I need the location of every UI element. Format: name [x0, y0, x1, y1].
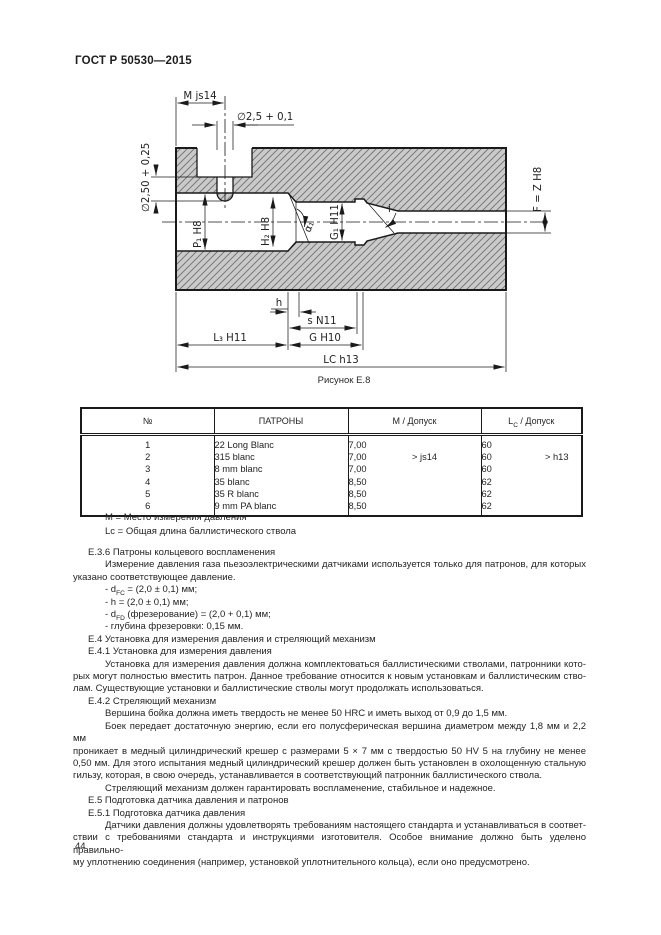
table-cell: 7,00 — [348, 435, 481, 452]
body-line: му уплотнению соединения (например, уста… — [73, 857, 586, 869]
body-line: Установка для измерения давления должна … — [73, 659, 586, 671]
body-line: Боек передает достаточную энергию, если … — [73, 721, 586, 746]
clause-heading: Е.3.6 Патроны кольцевого воспламенения — [73, 547, 586, 559]
lc-tolerance-note: > h13 — [545, 452, 569, 462]
body-text: Е.3.6 Патроны кольцевого воспламененияИз… — [73, 547, 586, 870]
table-row: 535 R blanc8,5062 — [81, 488, 582, 500]
table-cell: 60 — [481, 463, 582, 475]
table-cell: 8,50 — [348, 500, 481, 516]
label-depth-dia: ∅2,50 + 0,25 — [141, 143, 152, 212]
chamber-drawing: M js14 ∅2,5 + 0,1 ∅2,50 + 0,25 P₁ H8 H₂ … — [0, 0, 661, 400]
body-line: проникает в медный цилиндрический крешер… — [73, 746, 586, 758]
table-cell: 5 — [81, 488, 214, 500]
body-line: Стреляющий механизм должен гарантировать… — [73, 783, 586, 795]
table-row: 38 mm blanc7,0060 — [81, 463, 582, 475]
gost-document-page: { "page": { "doc_number": "ГОСТ Р 50530—… — [0, 0, 661, 935]
page-number: 44 — [75, 841, 86, 852]
barrel-block — [176, 148, 506, 290]
body-line: Вершина бойка должна иметь твердость не … — [73, 708, 586, 720]
body-line: гильзу, которая, в свою очередь, устанав… — [73, 770, 586, 782]
table-cell: 62 — [481, 500, 582, 516]
table-cell: 1 — [81, 435, 214, 452]
col-header-num: № — [81, 408, 214, 435]
clause-heading: Е.4.1 Установка для измерения давления — [73, 646, 586, 658]
col-header-lc: LC / Допуск — [481, 408, 582, 435]
table-cell: 4 — [81, 476, 214, 488]
label-h: h — [276, 298, 282, 309]
table-cell: 62 — [481, 488, 582, 500]
body-line: ствии с требованиями стандарта и инструк… — [73, 832, 586, 857]
body-line: Датчики давления должны удовлетворять тр… — [73, 820, 586, 832]
clause-heading: Е.5 Подготовка датчика давления и патрон… — [73, 795, 586, 807]
label-lc: LC h13 — [323, 355, 358, 366]
figure-caption: Рисунок Е.8 — [176, 375, 512, 386]
body-line: 0,50 мм. Для этого испытания медный цили… — [73, 758, 586, 770]
col-header-cartridges: ПАТРОНЫ — [214, 408, 348, 435]
label-s: s N11 — [307, 316, 336, 327]
m-tolerance-note: > js14 — [412, 452, 437, 462]
table-cell: 60 — [481, 435, 582, 452]
body-line: - h = (2,0 ± 0,1) мм; — [73, 597, 586, 609]
clause-heading: Е.4 Установка для измерения давления и с… — [73, 634, 586, 646]
body-line: рых могут полностью вместить патрон. Дан… — [73, 671, 586, 683]
table-cell: 8,50 — [348, 476, 481, 488]
legend-line-m: М = Место измерения давления — [105, 511, 296, 525]
label-g: G H10 — [309, 333, 341, 344]
dimension-labels: M js14 ∅2,5 + 0,1 ∅2,50 + 0,25 P₁ H8 H₂ … — [141, 91, 544, 366]
table-cell: 8,50 — [348, 488, 481, 500]
label-g1: G₁ H11 — [330, 204, 341, 240]
clause-heading: Е.4.2 Стреляющий механизм — [73, 696, 586, 708]
figure-legend: М = Место измерения давления Lc = Общая … — [105, 511, 296, 538]
label-p1: P₁ H8 — [193, 220, 204, 248]
table-row: 435 blanc8,5062 — [81, 476, 582, 488]
table-cell: 35 R blanc — [214, 488, 348, 500]
label-hole-dia: ∅2,5 + 0,1 — [237, 112, 293, 123]
label-h2: H₂ H8 — [261, 217, 272, 246]
label-l3: L₃ H11 — [213, 333, 247, 344]
body-line: - dFD (фрезерование) = (2,0 + 0,1) мм; — [73, 609, 586, 621]
table-cell: 22 Long Blanc — [214, 435, 348, 452]
table-cell: 2 — [81, 451, 214, 463]
table-cell: 62 — [481, 476, 582, 488]
body-line: - глубина фрезеровки: 0,15 мм. — [73, 621, 586, 633]
counterbore — [197, 148, 252, 177]
table-row: 122 Long Blanc7,0060 — [81, 435, 582, 452]
col-header-m: М / Допуск — [348, 408, 481, 435]
table-row: 2315 blanc7,0060 — [81, 451, 582, 463]
table-body: 122 Long Blanc7,00602315 blanc7,006038 m… — [81, 435, 582, 517]
table-cell: 315 blanc — [214, 451, 348, 463]
body-line: лам. Существующие установки и баллистиче… — [73, 683, 586, 695]
clause-heading: Е.5.1 Подготовка датчика давления — [73, 808, 586, 820]
legend-line-lc: Lc = Общая длина баллистического ствола — [105, 525, 296, 539]
cartridge-table: № ПАТРОНЫ М / Допуск LC / Допуск 122 Lon… — [80, 407, 583, 517]
body-line: указано соответствующее давление. — [73, 572, 586, 584]
table-cell: 3 — [81, 463, 214, 475]
body-line: - dFC = (2,0 ± 0,1) мм; — [73, 584, 586, 596]
table-cell: 7,00 — [348, 463, 481, 475]
table-cell: 8 mm blanc — [214, 463, 348, 475]
label-i: i — [388, 204, 391, 215]
body-line: Измерение давления газа пьезоэлектрическ… — [73, 559, 586, 571]
label-f: F = Z H8 — [533, 167, 544, 212]
label-m-js14: M js14 — [183, 91, 216, 102]
table-cell: 35 blanc — [214, 476, 348, 488]
table-header-row: № ПАТРОНЫ М / Допуск LC / Допуск — [81, 408, 582, 435]
